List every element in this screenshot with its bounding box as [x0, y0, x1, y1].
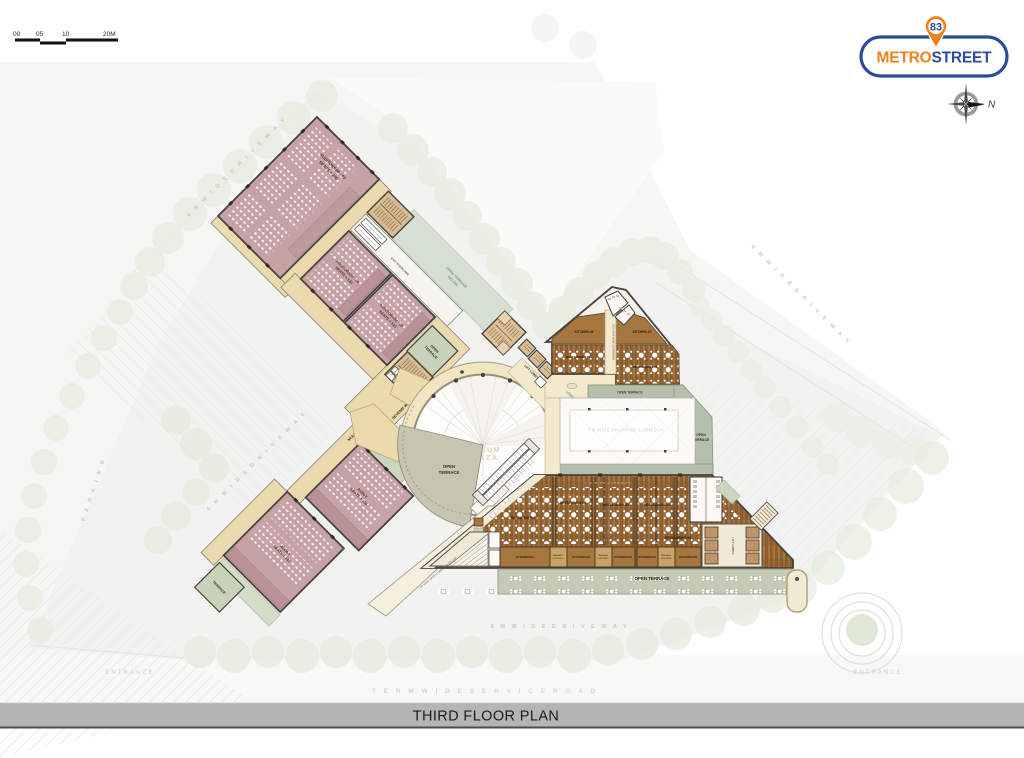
- svg-text:RESTAURANT-07: RESTAURANT-07: [633, 365, 658, 369]
- svg-text:METROSTREET: METROSTREET: [877, 50, 993, 67]
- svg-text:00: 00: [13, 31, 21, 38]
- svg-text:TERRACE: TERRACE: [439, 470, 460, 475]
- svg-text:3.0M WIDE: 3.0M WIDE: [597, 558, 609, 560]
- svg-text:THIRD FLOOR PLAN: THIRD FLOOR PLAN: [413, 709, 560, 725]
- svg-text:7 M WIDE SHOPPING CORRIDOR: 7 M WIDE SHOPPING CORRIDOR: [588, 428, 665, 433]
- svg-text:ENTRANCE: ENTRANCE: [853, 670, 902, 676]
- svg-text:OPEN TERRACE: OPEN TERRACE: [635, 576, 670, 581]
- svg-text:20M: 20M: [103, 31, 116, 38]
- svg-text:OPEN TERRACE: OPEN TERRACE: [617, 391, 642, 395]
- svg-text:OPEN: OPEN: [443, 464, 455, 469]
- svg-text:KITCHEN-07: KITCHEN-07: [633, 330, 652, 334]
- svg-text:83: 83: [930, 22, 942, 34]
- svg-text:KITCHEN-02: KITCHEN-02: [572, 555, 590, 559]
- svg-text:KITCHEN-04: KITCHEN-04: [638, 555, 656, 559]
- svg-text:RESTAURANT-06: RESTAURANT-06: [566, 355, 591, 359]
- svg-text:PASSAGE: PASSAGE: [553, 554, 564, 557]
- svg-text:10: 10: [62, 31, 70, 38]
- svg-text:3.0M WIDE: 3.0M WIDE: [660, 558, 672, 560]
- svg-text:KITCHEN 01: KITCHEN 01: [516, 555, 534, 559]
- svg-text:LIFT LOBBY: LIFT LOBBY: [731, 538, 735, 555]
- svg-text:RESTAURANT-01: RESTAURANT-01: [511, 516, 537, 520]
- svg-text:RESTAURANT-03: RESTAURANT-03: [603, 503, 629, 507]
- svg-text:PASSAGE: PASSAGE: [661, 554, 672, 557]
- svg-text:RESTAURANT-05: RESTAURANT-05: [665, 536, 691, 540]
- svg-text:T E N M W I D E S E R V I C: T E N M W I D E S E R V I C E R O A D: [372, 688, 598, 695]
- svg-text:6 M W I D E D R I V E W A: 6 M W I D E D R I V E W A Y: [491, 624, 630, 630]
- svg-text:PASSAGE: PASSAGE: [598, 554, 609, 557]
- svg-text:KITCHEN-06: KITCHEN-06: [575, 330, 594, 334]
- svg-text:RESTAURANT-04: RESTAURANT-04: [644, 503, 670, 507]
- svg-text:KITCHEN-05: KITCHEN-05: [679, 555, 697, 559]
- svg-text:3.00 M M WIDE CORRIDOR: 3.00 M M WIDE CORRIDOR: [612, 324, 616, 360]
- svg-text:05: 05: [36, 31, 44, 38]
- svg-text:N: N: [988, 100, 996, 111]
- svg-text:RESTAURANT-02: RESTAURANT-02: [560, 501, 586, 505]
- svg-text:3.0M WIDE: 3.0M WIDE: [552, 558, 564, 560]
- svg-text:7 M WIDE CORRIDOR: 7 M WIDE CORRIDOR: [585, 481, 631, 485]
- svg-text:OPEN: OPEN: [696, 433, 706, 437]
- svg-text:ENTRANCE: ENTRANCE: [105, 670, 154, 676]
- svg-text:KITCHEN-03: KITCHEN-03: [614, 555, 632, 559]
